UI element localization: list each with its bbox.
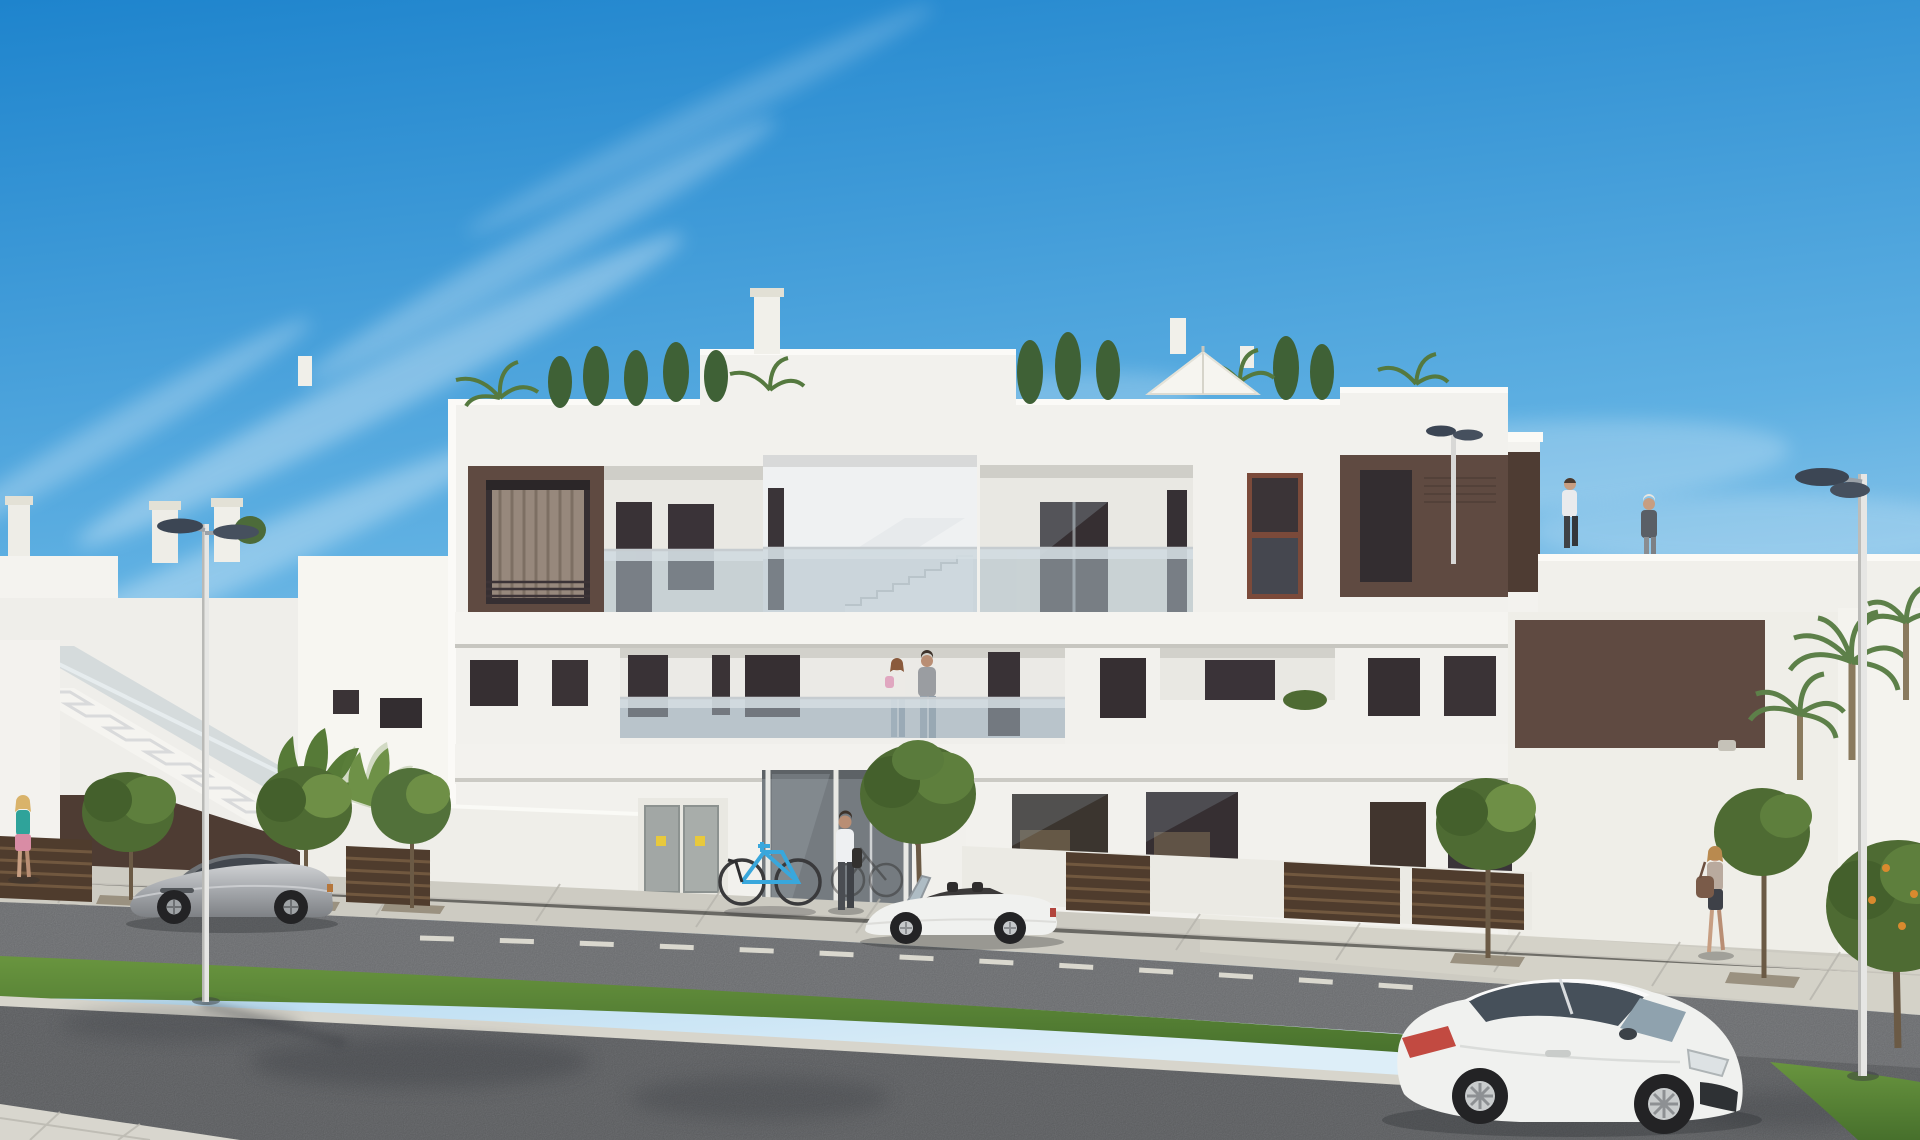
lamp-head [1830,482,1870,498]
headrest [972,882,983,892]
main-balcony-recess [620,648,1065,746]
window [1100,658,1146,718]
curtained-window [486,480,590,604]
fence-panel [1412,868,1524,930]
second-floor [468,455,1508,616]
wheel [890,912,922,944]
fence-panel [0,836,92,902]
wing-window [1360,470,1412,582]
lamp-head [157,519,203,534]
architectural-render [0,0,1920,1140]
fence-panel [346,846,430,906]
handbag [1696,876,1714,898]
mirror [1619,1028,1637,1040]
cabinet-door [684,806,718,892]
chimney [152,505,178,563]
headrest [947,882,958,892]
white-shirt [836,829,854,863]
window [1444,656,1496,716]
child-in-arms [885,676,894,688]
brown-framed-window [1247,473,1303,599]
utility-cabinets [638,798,728,902]
small-window [333,690,359,714]
chimney [754,292,780,354]
lamp-head [213,525,259,540]
teal-top [16,810,30,836]
small-window [380,698,422,728]
wheel [1452,1068,1508,1124]
warning-sticker [656,836,666,846]
cabinet-door [645,806,679,892]
fence-panel [1284,862,1400,924]
right-balcony [1160,648,1335,744]
fence-panel [1066,852,1150,914]
small-window [552,660,588,706]
brown-facade-panel [1515,620,1765,748]
upper-glass-balustrades [604,548,1193,614]
taillight [327,884,333,892]
chimney [1170,318,1186,354]
wheel [1634,1074,1694,1134]
small-window [470,660,518,706]
trousers [838,862,845,910]
balcony-plant [1283,690,1327,710]
floor-slab [455,612,1508,648]
wall-vent [1718,740,1736,751]
window [1368,658,1420,716]
pink-skirt [15,834,31,851]
chimney [8,500,30,562]
carried-jacket [852,848,862,868]
door-handle [1545,1050,1571,1057]
warning-sticker [695,836,705,846]
wheel [274,890,308,924]
chimney [298,356,312,386]
wing-brown-panel [1340,455,1508,597]
taillight [1050,908,1056,917]
wheel [157,890,191,924]
wheel [994,912,1026,944]
